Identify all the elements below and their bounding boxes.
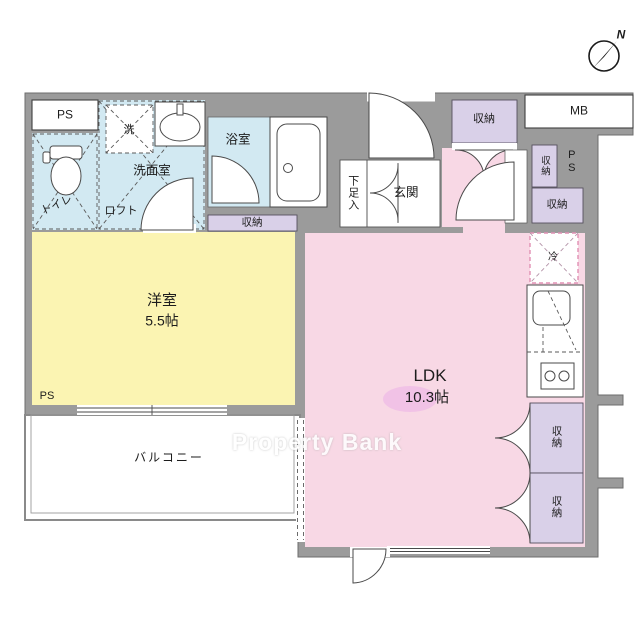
window-ldk-south [387, 546, 490, 554]
pipe-space-box-top-left [32, 100, 98, 130]
room-bathroom [208, 117, 270, 207]
storage-box-bath [208, 215, 297, 231]
ldk-south-door [350, 547, 390, 583]
window-ldk-west [296, 418, 305, 542]
floor-plan-svg [0, 0, 640, 640]
storage-box-right-1 [532, 145, 557, 187]
storage-box-ldk-2 [530, 473, 583, 543]
window-western-balcony [77, 405, 227, 415]
sink-icon [155, 102, 205, 146]
fridge-space [530, 233, 578, 283]
washer-icon [106, 105, 153, 153]
room-entrance [340, 160, 440, 227]
balcony [25, 415, 300, 520]
kitchen-sink-icon [533, 291, 570, 325]
highlight-blob [383, 386, 437, 412]
room-western [32, 232, 295, 405]
bathtub-icon [270, 117, 327, 207]
ldk-south-door-arc [353, 549, 386, 583]
stove-icon [541, 363, 574, 389]
floor-plan: PS 洗 洗面室 トイレ ロフト 浴室 収納 下足入 玄関 収納 MB PS 収… [0, 0, 640, 640]
kitchen-counter [527, 285, 583, 397]
storage-box-right-2 [532, 188, 583, 223]
meter-box [525, 95, 633, 128]
storage-box-ldk-1 [530, 403, 583, 473]
compass-north-icon [589, 41, 619, 71]
